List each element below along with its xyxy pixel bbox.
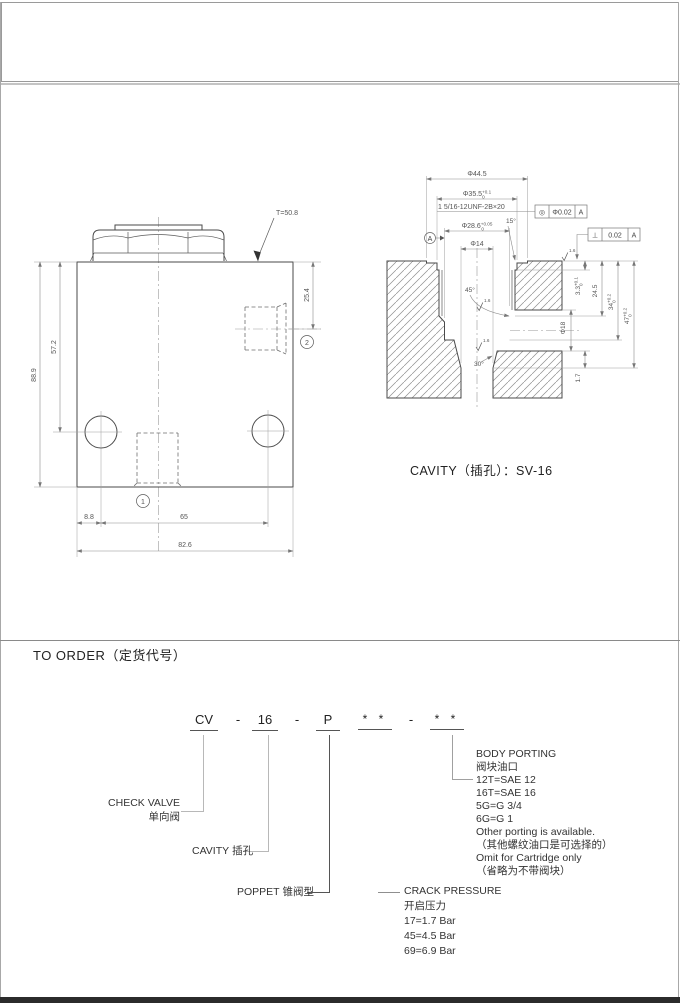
callout-check-valve: CHECK VALVE 单向阀 — [80, 797, 180, 824]
thread-callout: 1 5/16-12UNF-2B×20 — [438, 204, 505, 211]
dim-counterbore: Φ35.5+0.10 — [463, 190, 492, 200]
check-valve-zh: 单向阀 — [80, 811, 180, 825]
connector-size — [268, 735, 269, 852]
callout-crack-pressure: CRACK PRESSURE 开启压力 17=1.7 Bar 45=4.5 Ba… — [404, 884, 501, 959]
dim-depth-34: 34+0.20 — [607, 293, 617, 310]
order-code-sep3: - — [404, 712, 418, 727]
body-porting-note: Other porting is available. — [476, 826, 613, 839]
dim-depth-24-5: 24.5 — [592, 284, 599, 297]
body-porting-title: BODY PORTING — [476, 748, 613, 761]
dim-edge-to-hole: 8.8 — [84, 514, 94, 521]
dim-hole-offset: 57.2 — [51, 340, 58, 354]
dim-port-diameter: Φ18 — [560, 321, 567, 334]
body-porting-note: （省略为不带阀块） — [476, 865, 613, 878]
svg-text:1.6: 1.6 — [483, 338, 490, 343]
body-porting-option: 16T=SAE 16 — [476, 787, 613, 800]
header-divider — [0, 83, 680, 85]
leader-arrow — [254, 251, 261, 262]
crack-pressure-title: CRACK PRESSURE — [404, 884, 501, 899]
gdt-perpendicularity-frame: ⊥ 0.02 A — [577, 228, 640, 259]
poppet-zh: 锥阀型 — [283, 886, 315, 898]
connector-porting — [452, 735, 453, 779]
torque-label: T=50.8 — [276, 210, 298, 217]
angle-annotations: 15° 45° 30° — [465, 217, 516, 368]
port-1-label: 1 — [141, 499, 145, 506]
angle-15: 15° — [506, 217, 516, 225]
cavity-section-view: Φ44.5 Φ35.5+0.10 1 5/16-12UNF-2B×20 Φ28.… — [380, 158, 670, 448]
finish-value: 1.6 — [484, 298, 491, 303]
header-box — [1, 2, 679, 82]
port-1: 1 — [133, 433, 182, 508]
svg-text:A: A — [579, 210, 584, 217]
connector-model — [203, 735, 204, 812]
dim-width: 82.6 — [178, 542, 192, 549]
dim-port2-depth: 25.4 — [304, 288, 311, 302]
crack-pressure-option: 45=4.5 Bar — [404, 929, 501, 944]
cavity-caption: CAVITY（插孔）：SV-16 — [410, 460, 553, 479]
body-porting-zh: 阀块油口 — [476, 761, 613, 774]
cavity-block-section — [387, 261, 562, 398]
datum-label: A — [428, 236, 433, 243]
body-porting-note: Omit for Cartridge only — [476, 852, 613, 865]
connector-type — [329, 735, 330, 892]
order-code-porting: * * — [430, 712, 464, 730]
order-code-type: P — [316, 712, 340, 731]
svg-text:Φ0.02: Φ0.02 — [552, 210, 571, 217]
body-porting-option: 12T=SAE 12 — [476, 774, 613, 787]
perpendicularity-icon: ⊥ — [592, 233, 598, 240]
callout-poppet: POPPET 锥阀型 — [237, 886, 314, 900]
crack-pressure-option: 69=6.9 Bar — [404, 944, 501, 959]
crack-pressure-zh: 开启压力 — [404, 899, 501, 914]
connector-crack-h — [378, 892, 400, 893]
order-code-sep2: - — [290, 712, 304, 727]
port-2: 2 — [235, 303, 321, 354]
dim-spotface: Φ44.5 — [467, 171, 486, 178]
mounting-hole-left — [80, 411, 122, 527]
page-footer-bar — [0, 997, 680, 1003]
dim-depth-3-3: 3.3+0.10 — [574, 277, 584, 296]
svg-text:A: A — [632, 233, 637, 240]
angle-45: 45° — [465, 286, 475, 294]
torque-annotation: T=50.8 — [254, 210, 299, 262]
cavity-zh: 插孔 — [232, 845, 253, 857]
datum-a-flag: A — [425, 233, 445, 244]
dim-pilot-bore: Φ14 — [470, 241, 483, 248]
dim-depth-47: 47+0.20 — [623, 307, 633, 324]
body-porting-option: 5G=G 3/4 — [476, 800, 613, 813]
page-border-left — [0, 2, 1, 1002]
valve-body-outline — [77, 262, 293, 487]
order-code-size: 16 — [252, 712, 278, 731]
mounting-hole-right — [247, 410, 289, 527]
dim-bore: Φ28.6+0.050 — [462, 222, 493, 232]
page-border-right — [678, 2, 679, 1002]
check-valve-en: CHECK VALVE — [80, 797, 180, 811]
svg-text:0.02: 0.02 — [608, 233, 622, 240]
svg-text:1.6: 1.6 — [569, 248, 576, 253]
order-code-model: CV — [190, 712, 218, 731]
connector-model-h — [181, 811, 204, 812]
crack-pressure-option: 17=1.7 Bar — [404, 914, 501, 929]
dim-hole-spacing: 65 — [180, 514, 188, 521]
concentricity-icon: ◎ — [539, 210, 545, 217]
valve-front-view: 2 1 T=50.8 88.9 57.2 25.4 8.8 — [20, 185, 340, 575]
dim-height: 88.9 — [31, 368, 38, 382]
section-divider — [0, 640, 680, 641]
connector-porting-h — [452, 779, 473, 780]
poppet-en: POPPET — [237, 886, 280, 898]
page: 2 1 T=50.8 88.9 57.2 25.4 8.8 — [0, 0, 680, 1007]
body-porting-option: 6G=G 1 — [476, 813, 613, 826]
callout-cavity: CAVITY 插孔 — [192, 845, 253, 859]
valve-dimensions: 88.9 57.2 25.4 8.8 65 82.6 — [31, 262, 313, 551]
port-2-label: 2 — [305, 340, 309, 347]
body-porting-note: （其他螺纹油口是可选择的） — [476, 839, 613, 852]
gdt-concentricity-frame: ◎ Φ0.02 A — [535, 205, 587, 218]
order-code-pressure: * * — [358, 712, 392, 730]
order-code-sep1: - — [231, 712, 245, 727]
cavity-en: CAVITY — [192, 845, 229, 857]
callout-body-porting: BODY PORTING 阀块油口 12T=SAE 12 16T=SAE 16 … — [476, 748, 613, 878]
dim-depth-1-7: 1.7 — [575, 373, 582, 382]
order-section-title: TO ORDER（定货代号） — [33, 645, 186, 664]
